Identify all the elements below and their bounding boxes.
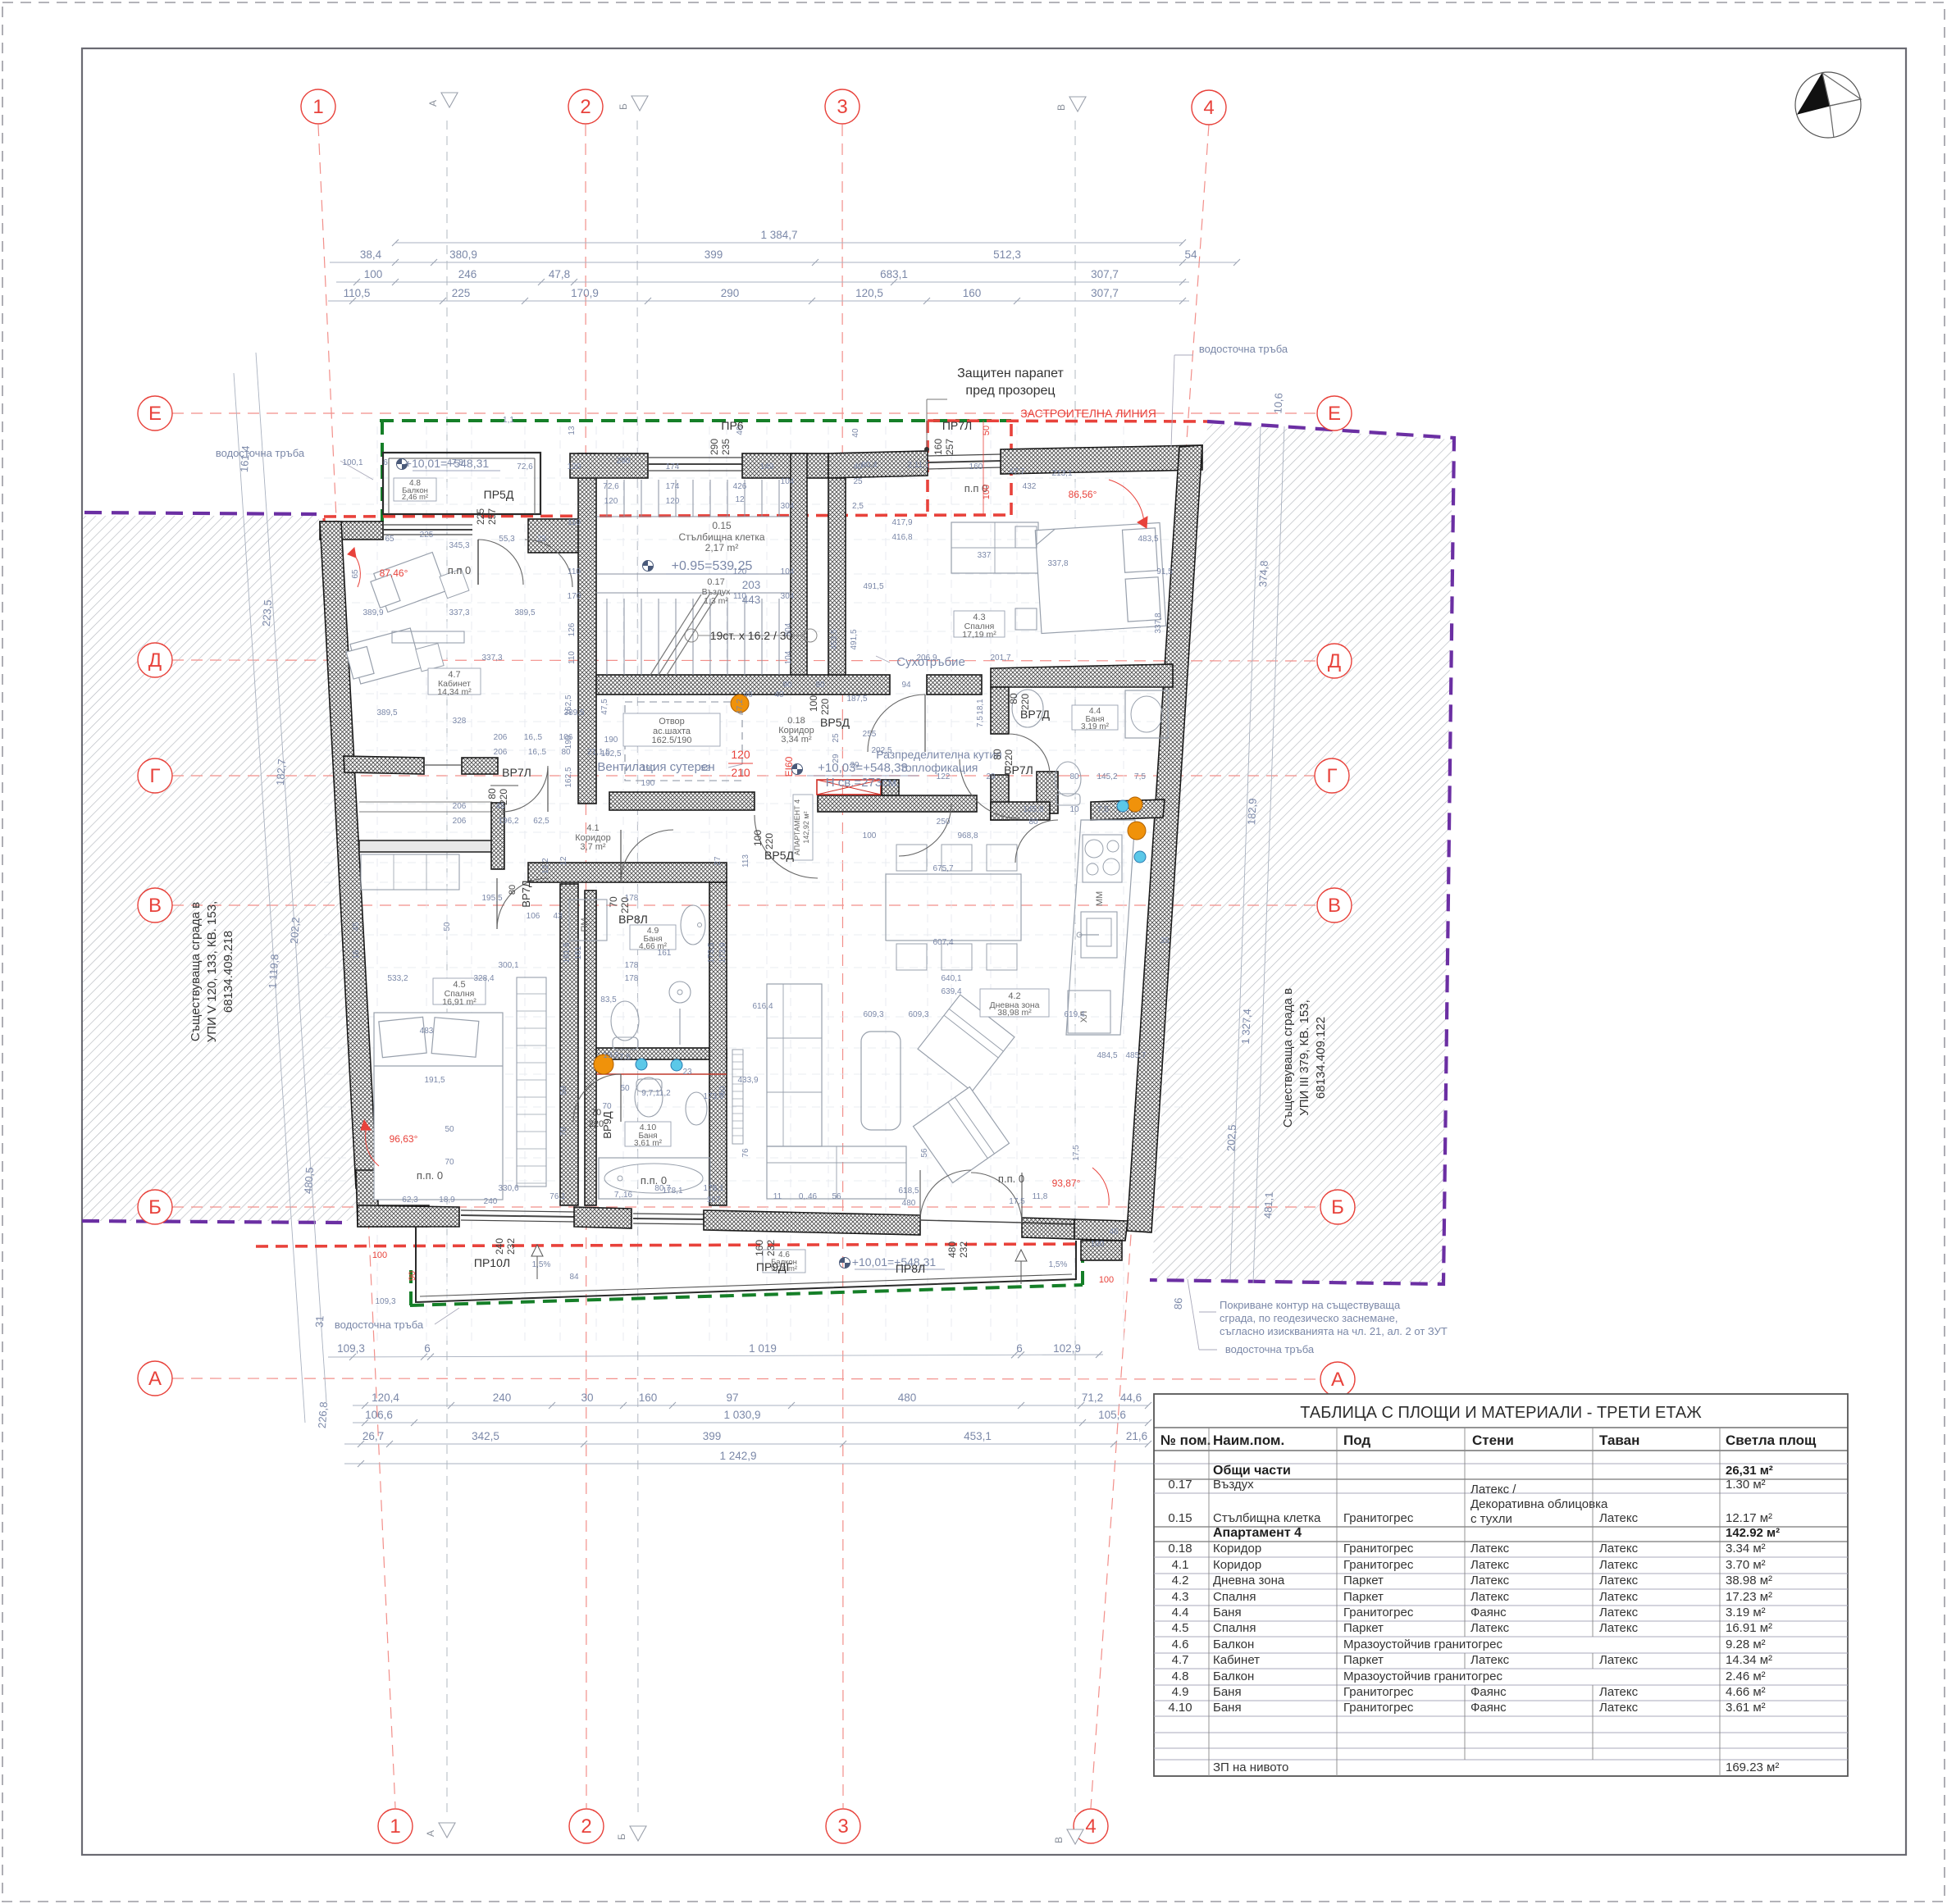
- svg-text:Гранитогрес: Гранитогрес: [1343, 1542, 1414, 1556]
- svg-text:Защитен парапет: Защитен парапет: [957, 367, 1064, 380]
- svg-text:Наим.пом.: Наим.пом.: [1213, 1433, 1284, 1448]
- svg-text:337,8: 337,8: [1154, 613, 1163, 633]
- svg-text:195,5: 195,5: [481, 894, 502, 903]
- svg-text:50: 50: [443, 922, 452, 932]
- svg-text:100: 100: [364, 268, 383, 280]
- svg-text:Мразоустойчив гранитогрес: Мразоустойчив гранитогрес: [1343, 1669, 1502, 1683]
- svg-text:232: 232: [765, 1240, 777, 1256]
- svg-text:Съществуваща сграда в: Съществуваща сграда в: [189, 902, 203, 1041]
- svg-text:3.70 м²: 3.70 м²: [1726, 1558, 1766, 1572]
- svg-text:80: 80: [1008, 693, 1019, 704]
- svg-text:618,5: 618,5: [898, 1187, 919, 1196]
- svg-text:2: 2: [580, 96, 590, 118]
- svg-text:105,6: 105,6: [1098, 1409, 1126, 1421]
- svg-text:17,5: 17,5: [1072, 1145, 1081, 1161]
- svg-text:25: 25: [853, 477, 863, 486]
- svg-text:Мразоустойчив гранитогрес: Мразоустойчив гранитогрес: [1343, 1638, 1502, 1651]
- svg-text:609,3: 609,3: [908, 1010, 928, 1019]
- svg-text:55,3: 55,3: [499, 535, 515, 544]
- svg-text:307,7: 307,7: [1091, 268, 1119, 280]
- svg-text:ВР7Д: ВР7Д: [520, 880, 532, 908]
- svg-text:4: 4: [1203, 97, 1214, 119]
- svg-text:417,9: 417,9: [891, 518, 912, 527]
- svg-text:Балкон: Балкон: [1213, 1669, 1254, 1683]
- svg-text:484,5: 484,5: [1097, 1051, 1117, 1060]
- svg-text:161: 161: [658, 949, 672, 958]
- svg-text:2,46 m²: 2,46 m²: [402, 493, 428, 502]
- svg-text:389,5: 389,5: [514, 608, 535, 617]
- svg-text:Стени: Стени: [1472, 1433, 1514, 1448]
- svg-text:0.15: 0.15: [712, 520, 732, 531]
- svg-text:Фаянс: Фаянс: [1471, 1606, 1507, 1619]
- svg-text:483: 483: [420, 1027, 434, 1036]
- svg-text:72,6: 72,6: [603, 482, 619, 491]
- svg-text:100: 100: [372, 1250, 387, 1260]
- svg-text:47,8: 47,8: [447, 458, 463, 467]
- svg-text:68134.409.218: 68134.409.218: [221, 931, 235, 1013]
- svg-text:0,.46: 0,.46: [799, 1192, 818, 1201]
- svg-text:Латекс: Латекс: [1599, 1621, 1639, 1635]
- svg-text:257: 257: [944, 439, 955, 455]
- svg-text:Латекс: Латекс: [1599, 1574, 1639, 1587]
- svg-text:1 242,9: 1 242,9: [719, 1450, 756, 1462]
- svg-text:Баня: Баня: [1213, 1685, 1242, 1699]
- svg-text:110,5: 110,5: [344, 287, 371, 299]
- svg-text:10: 10: [1069, 805, 1079, 814]
- svg-text:Латекс: Латекс: [1471, 1574, 1510, 1587]
- svg-text:483,5: 483,5: [1138, 535, 1158, 544]
- svg-text:1,5%: 1,5%: [532, 1260, 551, 1269]
- svg-text:50: 50: [559, 1086, 568, 1095]
- svg-text:50: 50: [718, 1086, 727, 1095]
- svg-text:4.66 м²: 4.66 м²: [1726, 1685, 1766, 1699]
- svg-text:220: 220: [1019, 694, 1031, 710]
- svg-text:38,4: 38,4: [360, 248, 382, 261]
- svg-text:Г: Г: [150, 765, 161, 787]
- svg-text:ПР9ДГ: ПР9ДГ: [756, 1260, 793, 1273]
- svg-text:162,5: 162,5: [564, 767, 573, 787]
- svg-text:Латекс: Латекс: [1471, 1542, 1510, 1556]
- svg-text:водосточна тръба: водосточна тръба: [216, 447, 305, 459]
- svg-text:1.30 м²: 1.30 м²: [1726, 1478, 1766, 1492]
- svg-text:250: 250: [937, 818, 951, 827]
- svg-text:220: 220: [589, 1119, 604, 1129]
- svg-text:1: 1: [312, 96, 323, 118]
- svg-text:Гранитогрес: Гранитогрес: [1343, 1606, 1414, 1619]
- svg-text:202,5: 202,5: [1224, 1124, 1238, 1151]
- svg-text:В: В: [1328, 895, 1341, 917]
- svg-text:389,5: 389,5: [376, 708, 397, 717]
- svg-text:433,9: 433,9: [737, 1076, 758, 1085]
- svg-text:2,17 m²: 2,17 m²: [705, 542, 739, 553]
- svg-text:453,5: 453,5: [830, 629, 839, 649]
- svg-text:162,5: 162,5: [600, 749, 621, 758]
- svg-text:91,5: 91,5: [1156, 567, 1173, 576]
- svg-text:304: 304: [784, 622, 793, 636]
- svg-text:В: В: [1053, 1837, 1065, 1843]
- svg-text:4.4: 4.4: [1172, 1606, 1189, 1619]
- svg-text:Латекс: Латекс: [1599, 1606, 1639, 1619]
- svg-text:607,4: 607,4: [932, 938, 953, 947]
- svg-text:235: 235: [720, 439, 732, 455]
- svg-text:Латекс: Латекс: [1471, 1621, 1510, 1635]
- svg-text:191,5: 191,5: [563, 942, 572, 963]
- svg-text:52: 52: [700, 764, 710, 773]
- svg-text:Балкон: Балкон: [1213, 1638, 1254, 1651]
- svg-text:206: 206: [453, 802, 467, 811]
- svg-text:90: 90: [408, 1271, 417, 1281]
- svg-text:Съществуваща сграда в: Съществуваща сграда в: [1281, 988, 1295, 1127]
- svg-text:Баня: Баня: [1213, 1701, 1242, 1715]
- svg-text:109,3: 109,3: [337, 1342, 365, 1355]
- svg-text:120,4: 120,4: [372, 1392, 399, 1404]
- svg-text:В: В: [148, 895, 162, 917]
- svg-text:3.34 м²: 3.34 м²: [1726, 1542, 1766, 1556]
- svg-text:Фаянс: Фаянс: [1471, 1685, 1507, 1699]
- svg-text:104: 104: [781, 567, 795, 576]
- svg-text:Дневна зона: Дневна зона: [1213, 1574, 1285, 1587]
- svg-text:водосточна тръба: водосточна тръба: [1199, 343, 1288, 355]
- svg-text:619,4: 619,4: [1064, 1010, 1084, 1019]
- svg-text:162,5: 162,5: [564, 695, 573, 715]
- svg-text:Латекс: Латекс: [1599, 1701, 1639, 1715]
- svg-text:14.34 м²: 14.34 м²: [1726, 1653, 1772, 1667]
- svg-text:Таван: Таван: [1599, 1433, 1639, 1448]
- svg-text:7,.16: 7,.16: [614, 1191, 633, 1200]
- svg-text:170,9: 170,9: [571, 287, 599, 299]
- svg-text:76: 76: [741, 1148, 750, 1158]
- svg-text:480,5: 480,5: [302, 1167, 316, 1195]
- svg-text:178: 178: [625, 974, 639, 983]
- svg-text:162.5/190: 162.5/190: [652, 736, 692, 745]
- svg-text:47,5: 47,5: [600, 699, 609, 715]
- svg-text:Фаянс: Фаянс: [1471, 1701, 1507, 1715]
- svg-text:3: 3: [837, 1815, 848, 1838]
- svg-text:Латекс: Латекс: [1599, 1685, 1639, 1699]
- svg-text:675,7: 675,7: [932, 864, 953, 873]
- svg-text:453,1: 453,1: [964, 1430, 992, 1442]
- svg-text:4.7: 4.7: [1172, 1653, 1189, 1667]
- svg-text:Латекс: Латекс: [1471, 1558, 1510, 1572]
- svg-text:ПР7Л: ПР7Л: [942, 419, 972, 432]
- svg-text:104: 104: [781, 477, 795, 486]
- svg-text:40: 40: [736, 426, 745, 435]
- svg-text:226,8: 226,8: [316, 1401, 330, 1429]
- svg-text:13: 13: [568, 426, 577, 435]
- svg-text:10,6: 10,6: [1271, 393, 1284, 414]
- svg-text:А: А: [425, 1830, 436, 1837]
- svg-text:12: 12: [735, 495, 745, 504]
- svg-text:47,2: 47,2: [736, 699, 745, 715]
- svg-text:84: 84: [569, 1273, 579, 1282]
- svg-text:616,4: 616,4: [752, 1002, 773, 1011]
- svg-text:142.92 м²: 142.92 м²: [1726, 1526, 1780, 1540]
- svg-text:1 119,8: 1 119,8: [267, 954, 281, 989]
- svg-text:255: 255: [863, 730, 877, 739]
- svg-text:40: 40: [851, 428, 860, 438]
- svg-text:ТАБЛИЦА С ПЛОЩИ И МАТЕРИАЛИ -: ТАБЛИЦА С ПЛОЩИ И МАТЕРИАЛИ - ТРЕТИ ЕТАЖ: [1300, 1404, 1702, 1422]
- svg-text:304: 304: [781, 502, 795, 511]
- svg-text:160: 160: [932, 439, 944, 455]
- svg-text:206: 206: [494, 748, 508, 757]
- svg-text:512,3: 512,3: [993, 248, 1021, 261]
- svg-text:16,91 m²: 16,91 m²: [442, 997, 476, 1007]
- svg-text:100: 100: [863, 831, 877, 840]
- svg-text:203: 203: [742, 579, 761, 591]
- svg-text:40: 40: [774, 690, 784, 699]
- svg-text:304: 304: [781, 592, 795, 601]
- svg-text:Латекс /: Латекс /: [1471, 1483, 1516, 1496]
- svg-text:Б: Б: [618, 103, 629, 110]
- svg-text:№ пом.: № пом.: [1160, 1433, 1211, 1448]
- svg-text:Под: Под: [1343, 1433, 1370, 1448]
- svg-text:п.п. 0: п.п. 0: [417, 1169, 443, 1182]
- svg-text:7,5: 7,5: [1097, 805, 1109, 814]
- svg-text:639,4: 639,4: [941, 987, 961, 996]
- svg-text:94: 94: [901, 681, 911, 690]
- svg-text:43: 43: [553, 912, 563, 921]
- svg-text:50: 50: [620, 1084, 630, 1093]
- svg-text:223,5: 223,5: [260, 599, 274, 627]
- svg-text:3,7 m²: 3,7 m²: [580, 842, 606, 852]
- svg-text:30: 30: [581, 1392, 593, 1404]
- svg-text:232: 232: [505, 1238, 517, 1255]
- svg-text:126: 126: [568, 622, 577, 636]
- svg-text:Гранитогрес: Гранитогрес: [1343, 1511, 1414, 1525]
- svg-text:399: 399: [704, 248, 723, 261]
- svg-text:ВР5Д: ВР5Д: [764, 849, 794, 862]
- svg-text:533,2: 533,2: [387, 974, 408, 983]
- svg-text:4.2: 4.2: [1172, 1574, 1189, 1587]
- svg-text:Латекс: Латекс: [1599, 1558, 1639, 1572]
- svg-text:173,5: 173,5: [707, 942, 716, 963]
- svg-text:Паркет: Паркет: [1343, 1590, 1384, 1604]
- svg-text:7,5: 7,5: [1134, 772, 1146, 781]
- svg-text:Паркет: Паркет: [1343, 1621, 1384, 1635]
- svg-text:Латекс: Латекс: [1599, 1653, 1639, 1667]
- svg-text:1 030,9: 1 030,9: [723, 1409, 760, 1421]
- svg-text:80: 80: [992, 749, 1003, 760]
- svg-text:160: 160: [639, 1392, 658, 1404]
- svg-text:337,3: 337,3: [481, 654, 502, 663]
- svg-text:26,31 м²: 26,31 м²: [1726, 1464, 1773, 1478]
- svg-text:174: 174: [666, 482, 680, 491]
- svg-text:Въздух: Въздух: [1213, 1478, 1254, 1492]
- svg-text:399: 399: [703, 1430, 722, 1442]
- svg-text:Б: Б: [1331, 1196, 1344, 1218]
- svg-text:1: 1: [390, 1815, 400, 1838]
- svg-text:206: 206: [453, 817, 467, 826]
- svg-text:70: 70: [559, 1127, 568, 1136]
- svg-text:1 384,7: 1 384,7: [760, 229, 797, 241]
- svg-text:968,8: 968,8: [957, 831, 978, 840]
- svg-text:12: 12: [559, 856, 568, 866]
- svg-text:Гранитогрес: Гранитогрес: [1343, 1558, 1414, 1572]
- svg-text:683,1: 683,1: [880, 268, 908, 280]
- svg-text:12,2: 12,2: [541, 858, 550, 874]
- svg-text:90: 90: [782, 681, 792, 690]
- svg-text:113: 113: [741, 854, 750, 868]
- svg-text:0.18: 0.18: [1168, 1542, 1192, 1556]
- svg-text:18,9: 18,9: [439, 1196, 455, 1205]
- svg-text:А: А: [148, 1368, 162, 1390]
- svg-text:70: 70: [445, 1158, 454, 1167]
- svg-text:300,1: 300,1: [498, 961, 518, 970]
- svg-text:46: 46: [743, 690, 753, 699]
- svg-text:80: 80: [1069, 772, 1079, 781]
- svg-text:640,1: 640,1: [941, 974, 961, 983]
- svg-text:337,3: 337,3: [449, 608, 469, 617]
- svg-text:104: 104: [784, 650, 793, 664]
- svg-text:178,1: 178,1: [662, 1187, 682, 1196]
- svg-text:Вентилация сутерен: Вентилация сутерен: [597, 760, 714, 774]
- svg-text:257: 257: [486, 508, 498, 525]
- svg-text:86,56°: 86,56°: [1069, 489, 1097, 500]
- svg-text:21,6: 21,6: [1126, 1430, 1147, 1442]
- svg-text:290: 290: [721, 287, 740, 299]
- svg-text:19,5: 19,5: [603, 1051, 619, 1060]
- svg-text:0.15: 0.15: [1168, 1511, 1192, 1525]
- svg-text:ВР8Л: ВР8Л: [618, 913, 648, 926]
- svg-text:100: 100: [1091, 1240, 1105, 1249]
- svg-text:УПИ V 120, 133, КВ. 153,: УПИ V 120, 133, КВ. 153,: [205, 901, 219, 1042]
- svg-text:328: 328: [453, 717, 467, 726]
- svg-text:160: 160: [963, 287, 982, 299]
- svg-text:38,98 m²: 38,98 m²: [997, 1008, 1032, 1018]
- svg-text:2.46 м²: 2.46 м²: [1726, 1669, 1766, 1683]
- svg-text:ПР8Л: ПР8Л: [896, 1262, 925, 1275]
- svg-text:водосточна тръба: водосточна тръба: [1225, 1343, 1315, 1355]
- svg-text:480: 480: [898, 1392, 917, 1404]
- svg-text:187,5: 187,5: [846, 695, 867, 704]
- svg-text:426: 426: [733, 482, 747, 491]
- svg-text:102,9: 102,9: [1053, 1342, 1081, 1355]
- svg-text:29: 29: [850, 761, 860, 770]
- svg-text:178: 178: [625, 894, 639, 903]
- svg-text:23: 23: [682, 1068, 692, 1077]
- svg-text:Стълбищна клетка: Стълбищна клетка: [1213, 1511, 1321, 1525]
- svg-text:4.5: 4.5: [1172, 1621, 1189, 1635]
- svg-text:2: 2: [581, 1815, 591, 1838]
- svg-text:17.23 м²: 17.23 м²: [1726, 1590, 1772, 1604]
- svg-text:480: 480: [946, 1241, 958, 1258]
- svg-text:3.61 м²: 3.61 м²: [1726, 1701, 1766, 1715]
- svg-text:225: 225: [452, 287, 471, 299]
- svg-text:210: 210: [731, 766, 750, 779]
- svg-text:Коридор: Коридор: [1213, 1542, 1261, 1556]
- svg-text:Б: Б: [148, 1196, 162, 1218]
- svg-text:УПИ III 379, КВ. 153,: УПИ III 379, КВ. 153,: [1297, 1000, 1311, 1116]
- svg-text:240: 240: [494, 1238, 505, 1255]
- svg-text:Коридор: Коридор: [1213, 1558, 1261, 1572]
- svg-text:В: В: [1056, 104, 1067, 111]
- svg-text:100: 100: [808, 695, 819, 712]
- svg-text:с тухли: с тухли: [1471, 1512, 1512, 1526]
- svg-text:17,19 m²: 17,19 m²: [962, 630, 996, 640]
- svg-text:106: 106: [527, 912, 540, 921]
- svg-text:16.91 м²: 16.91 м²: [1726, 1621, 1772, 1635]
- svg-text:3,61 m²: 3,61 m²: [634, 1139, 663, 1148]
- svg-text:206: 206: [494, 733, 508, 742]
- svg-text:80: 80: [815, 681, 825, 690]
- svg-text:71,2: 71,2: [1082, 1392, 1103, 1404]
- svg-text:7,5: 7,5: [619, 1053, 631, 1062]
- svg-text:174: 174: [666, 462, 680, 471]
- svg-text:120: 120: [568, 462, 581, 471]
- svg-text:485,7: 485,7: [1125, 1051, 1146, 1060]
- svg-text:416,8: 416,8: [891, 533, 912, 542]
- svg-text:374,8: 374,8: [1256, 560, 1270, 587]
- svg-text:342,5: 342,5: [472, 1430, 499, 1442]
- svg-text:110: 110: [733, 592, 746, 601]
- svg-text:149: 149: [760, 462, 774, 471]
- svg-text:54: 54: [1184, 248, 1197, 261]
- svg-text:35: 35: [1160, 936, 1170, 945]
- svg-text:240: 240: [493, 1392, 512, 1404]
- svg-text:Латекс: Латекс: [1471, 1653, 1510, 1667]
- svg-text:1,3 m²: 1,3 m²: [704, 596, 728, 606]
- svg-text:3,34 m²: 3,34 m²: [781, 735, 812, 745]
- svg-text:съгласно изискванията на чл. 2: съгласно изискванията на чл. 21, ал. 2 о…: [1220, 1325, 1448, 1337]
- svg-text:водосточна тръба: водосточна тръба: [335, 1319, 424, 1331]
- svg-text:45: 45: [352, 922, 361, 932]
- svg-text:Е: Е: [148, 403, 162, 425]
- svg-text:202,2: 202,2: [288, 917, 302, 945]
- svg-text:9,7,11,2: 9,7,11,2: [641, 1089, 671, 1098]
- svg-text:Б: Б: [616, 1833, 627, 1840]
- svg-text:Д: Д: [1328, 650, 1341, 672]
- svg-text:178,1: 178,1: [703, 1184, 723, 1193]
- svg-text:110: 110: [568, 567, 581, 576]
- svg-text:3.19 м²: 3.19 м²: [1726, 1606, 1766, 1619]
- svg-text:Гранитогрес: Гранитогрес: [1343, 1685, 1414, 1699]
- svg-text:1,1: 1,1: [503, 416, 514, 425]
- svg-text:3,19 m²: 3,19 m²: [1081, 722, 1110, 731]
- svg-text:122: 122: [937, 772, 951, 781]
- svg-text:120: 120: [604, 497, 618, 506]
- svg-text:330,6: 330,6: [498, 1184, 518, 1193]
- svg-text:4.8: 4.8: [1172, 1669, 1189, 1683]
- svg-text:173,9: 173,9: [718, 942, 727, 963]
- svg-text:190: 190: [604, 736, 618, 745]
- svg-text:190: 190: [564, 735, 573, 749]
- svg-text:190: 190: [641, 764, 655, 773]
- svg-text:70: 70: [591, 1108, 601, 1118]
- svg-text:Г: Г: [1327, 765, 1338, 787]
- svg-text:80: 80: [1028, 818, 1038, 827]
- svg-text:491,5: 491,5: [850, 629, 859, 649]
- svg-text:169.23 м²: 169.23 м²: [1726, 1761, 1779, 1774]
- svg-text:182,7: 182,7: [274, 758, 288, 786]
- svg-text:4: 4: [1085, 1815, 1096, 1838]
- svg-text:481,1: 481,1: [1261, 1191, 1275, 1218]
- svg-text:47,8: 47,8: [549, 268, 570, 280]
- svg-text:Гранитогрес: Гранитогрес: [1343, 1701, 1414, 1715]
- svg-text:0.17: 0.17: [707, 577, 724, 587]
- svg-text:2,11,1: 2,11,1: [907, 461, 929, 470]
- svg-text:50: 50: [445, 1125, 454, 1134]
- svg-text:46: 46: [1109, 1228, 1119, 1237]
- svg-text:62,3: 62,3: [402, 1196, 418, 1205]
- svg-text:337,8: 337,8: [1047, 559, 1068, 568]
- svg-text:23: 23: [536, 535, 546, 544]
- svg-text:Спалня: Спалня: [1213, 1590, 1256, 1604]
- svg-text:191,5: 191,5: [424, 1076, 445, 1085]
- svg-text:220: 220: [1003, 749, 1015, 766]
- svg-text:ВР5Д: ВР5Д: [820, 716, 850, 729]
- svg-text:47,7: 47,7: [1009, 467, 1025, 476]
- svg-text:240: 240: [484, 1197, 498, 1206]
